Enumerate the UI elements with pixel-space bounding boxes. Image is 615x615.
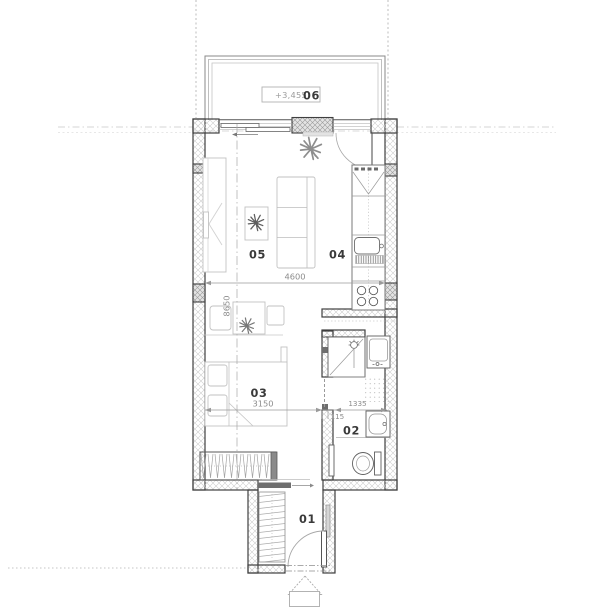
pillow (208, 365, 227, 386)
door-jamb-upper (322, 347, 328, 353)
dim-bedroom-width: 3150 (252, 399, 273, 409)
pillow (208, 395, 227, 416)
wall-bedroom-south (193, 480, 258, 490)
entry-marker-base (290, 592, 320, 607)
room-label-01: 01 (299, 513, 316, 526)
entry-door-swing (288, 531, 324, 567)
floor-plan-canvas: +3,455 06 (0, 0, 615, 615)
door-sill (303, 132, 333, 136)
dim-partition: 115 (331, 412, 345, 421)
shower-head-icon (351, 342, 358, 349)
balcony-door-swing (336, 133, 372, 169)
sofa (277, 177, 315, 268)
kitchen-sink-icon (355, 238, 380, 255)
entry (258, 480, 332, 607)
wall-bath-south (323, 480, 397, 490)
chair (267, 306, 284, 325)
wall-entry-west (248, 490, 258, 573)
floor-plan-svg: +3,455 06 (0, 0, 615, 615)
kitchen (352, 165, 385, 310)
wall-block-right-top (385, 164, 397, 176)
wall-entry-south (248, 565, 285, 573)
sliding-door-panel (258, 483, 291, 489)
washbasin-icon (369, 414, 387, 434)
room-label-05: 05 (249, 249, 266, 262)
dim-bathroom-width: 1335 (348, 399, 366, 408)
sliding-panel-2 (246, 128, 290, 132)
dim-apartment-depth: 8650 (222, 295, 232, 316)
room-label-02: 02 (343, 425, 360, 438)
balcony: +3,455 06 (205, 56, 385, 120)
faucet-icon (380, 244, 384, 248)
tile-area (363, 378, 390, 402)
dim-living-width: 4600 (284, 272, 305, 282)
dishwasher-vent (356, 256, 384, 264)
bedroom (200, 302, 287, 480)
room-label-03: 03 (251, 387, 268, 400)
entry-door-leaf (322, 531, 327, 567)
slide-arrow-head (232, 133, 237, 137)
wc-door-leaf (329, 445, 334, 476)
slide-arrow-head (310, 484, 314, 488)
room-label-04: 04 (329, 249, 346, 262)
room-label-06: 06 (303, 89, 320, 102)
wall-block-left-mid (193, 284, 205, 302)
plant-icon (301, 138, 322, 160)
toilet-tank (375, 452, 382, 475)
sliding-panel-1 (221, 124, 259, 128)
pier-top-left (193, 119, 219, 133)
pier-top-center (292, 118, 333, 134)
pier-top-right (371, 119, 397, 133)
